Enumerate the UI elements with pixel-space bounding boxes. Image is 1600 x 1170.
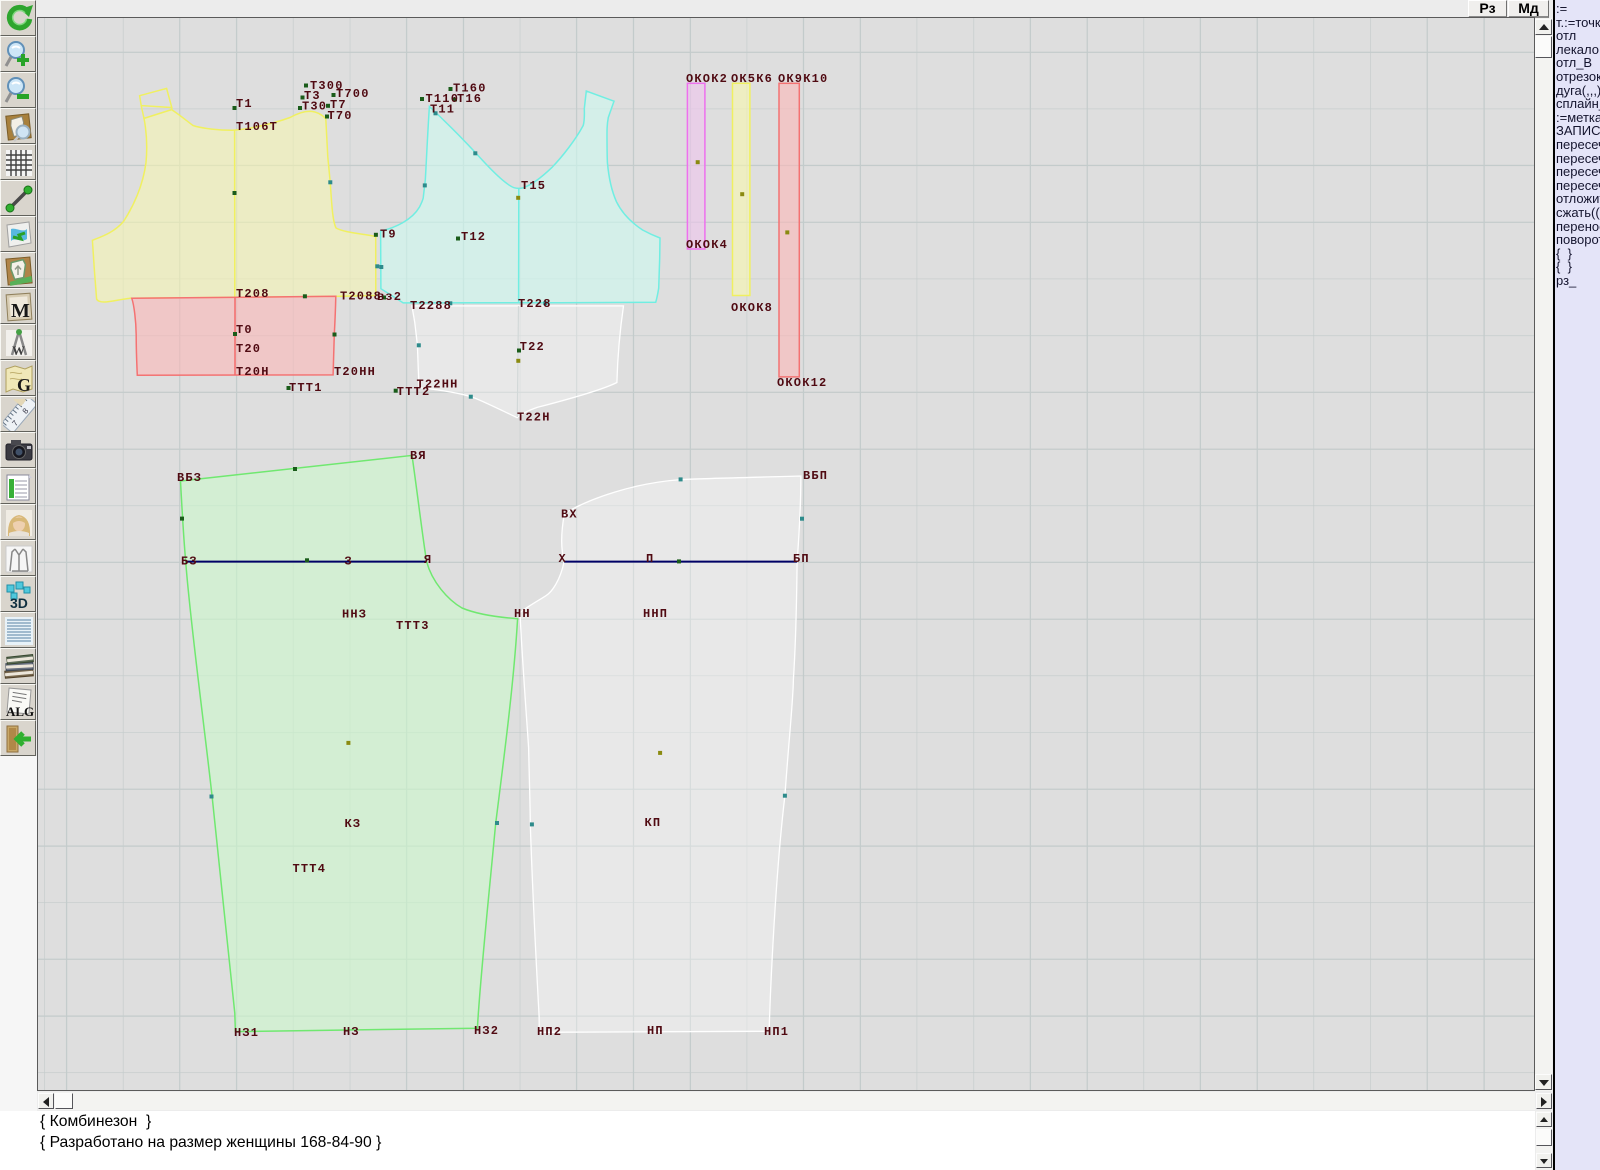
svg-text:ALG: ALG xyxy=(6,704,34,719)
svg-text:П: П xyxy=(646,552,654,566)
svg-text:вз2: вз2 xyxy=(377,290,402,304)
svg-text:ННП: ННП xyxy=(643,607,668,621)
svg-text:ТТТ2: ТТТ2 xyxy=(397,385,431,399)
svg-text:Т30: Т30 xyxy=(302,100,327,114)
svg-text:Т2088: Т2088 xyxy=(340,290,382,304)
svg-text:НЗ: НЗ xyxy=(343,1025,360,1039)
svg-text:ОКОК2: ОКОК2 xyxy=(686,72,728,86)
svg-text:НЗ1: НЗ1 xyxy=(234,1026,259,1040)
svg-text:ВБЗ: ВБЗ xyxy=(177,471,202,485)
svg-text:ОКОК4: ОКОК4 xyxy=(686,238,728,252)
svg-text:Т16: Т16 xyxy=(457,92,482,106)
svg-text:Т15: Т15 xyxy=(521,179,546,193)
svg-text:ТТТ1: ТТТ1 xyxy=(289,381,323,395)
svg-text:НП: НП xyxy=(647,1024,664,1038)
svg-text:Т12: Т12 xyxy=(461,230,486,244)
svg-text:Т20НН: Т20НН xyxy=(334,365,376,379)
svg-text:ОК9К10: ОК9К10 xyxy=(778,72,828,86)
svg-text:З: З xyxy=(345,555,353,569)
svg-text:W: W xyxy=(12,343,25,358)
svg-text:Т22: Т22 xyxy=(520,340,545,354)
svg-text:Я: Я xyxy=(424,553,432,567)
svg-text:Т228: Т228 xyxy=(518,297,552,311)
svg-text:НН: НН xyxy=(514,607,531,621)
svg-text:Т70: Т70 xyxy=(328,109,353,123)
svg-text:КЗ: КЗ xyxy=(345,817,362,831)
svg-text:КП: КП xyxy=(645,816,662,830)
svg-text:ВХ: ВХ xyxy=(561,508,578,522)
svg-text:Т106Т: Т106Т xyxy=(236,120,278,134)
svg-text:ОК5К6: ОК5К6 xyxy=(731,72,773,86)
svg-text:ОКОК8: ОКОК8 xyxy=(731,301,773,315)
svg-text:Т0: Т0 xyxy=(236,323,253,337)
svg-text:Т9: Т9 xyxy=(380,227,397,241)
svg-text:M: M xyxy=(11,300,30,322)
svg-text:ННЗ: ННЗ xyxy=(342,608,367,622)
svg-text:Т2288: Т2288 xyxy=(410,299,452,313)
svg-text:ТТТ4: ТТТ4 xyxy=(293,862,327,876)
svg-text:БЗ: БЗ xyxy=(181,555,198,569)
svg-text:БП: БП xyxy=(793,552,810,566)
svg-text:Т22Н: Т22Н xyxy=(517,411,551,425)
svg-text:Т20: Т20 xyxy=(236,342,261,356)
svg-text:Т11: Т11 xyxy=(430,103,455,117)
svg-text:НЗ2: НЗ2 xyxy=(474,1024,499,1038)
svg-text:ОКОК12: ОКОК12 xyxy=(777,376,827,390)
svg-text:ВЯ: ВЯ xyxy=(410,449,427,463)
svg-text:Х: Х xyxy=(559,552,567,566)
svg-text:Т20Н: Т20Н xyxy=(236,365,270,379)
svg-text:3D: 3D xyxy=(10,595,28,611)
svg-text:ВБП: ВБП xyxy=(803,469,828,483)
svg-text:НП1: НП1 xyxy=(764,1025,789,1039)
svg-text:G: G xyxy=(17,375,31,395)
svg-text:Т208: Т208 xyxy=(236,287,270,301)
svg-text:Т1: Т1 xyxy=(236,97,253,111)
svg-text:ТТТ3: ТТТ3 xyxy=(396,619,430,633)
svg-text:НП2: НП2 xyxy=(537,1025,562,1039)
